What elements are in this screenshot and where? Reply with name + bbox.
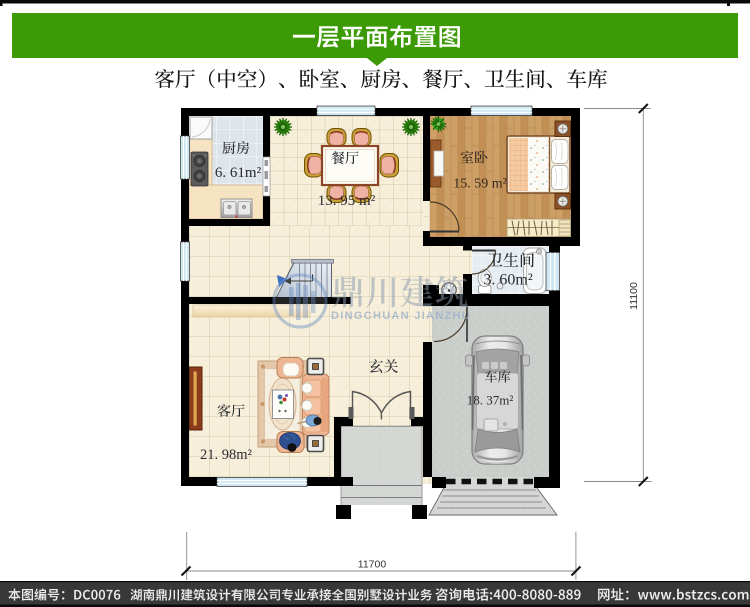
svg-text:13. 95 m²: 13. 95 m² bbox=[318, 193, 376, 209]
svg-text:18. 37m²: 18. 37m² bbox=[467, 393, 514, 408]
svg-text:6. 61m²: 6. 61m² bbox=[215, 165, 262, 181]
svg-text:15. 59 m²: 15. 59 m² bbox=[453, 177, 507, 192]
svg-text:11100: 11100 bbox=[628, 282, 640, 310]
svg-text:DINGCHUAN JIANZHU: DINGCHUAN JIANZHU bbox=[331, 310, 471, 322]
svg-text:3. 60m²: 3. 60m² bbox=[483, 272, 532, 289]
svg-text:11700: 11700 bbox=[358, 559, 387, 571]
svg-text:21. 98m²: 21. 98m² bbox=[200, 447, 253, 463]
